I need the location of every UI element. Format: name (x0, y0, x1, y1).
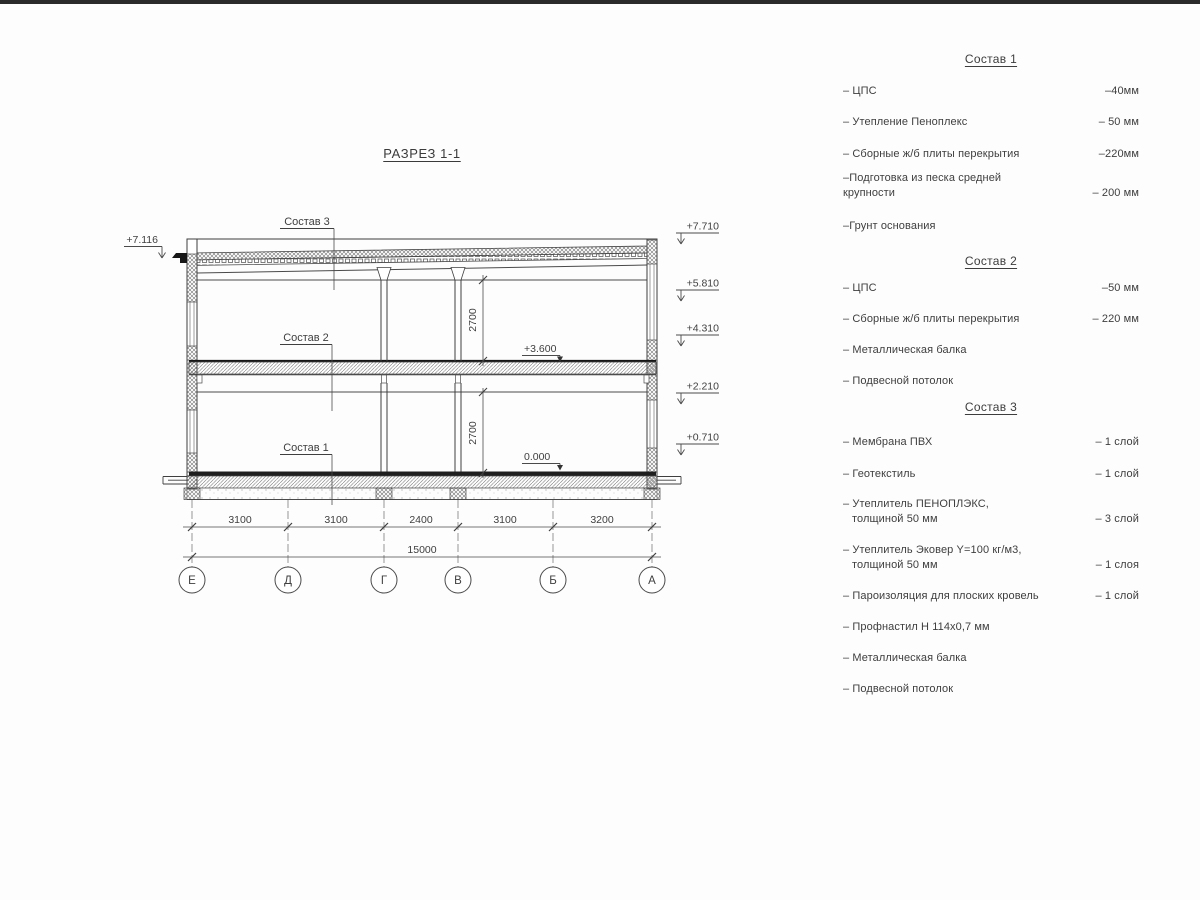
legend-row: – Сборные ж/б плиты перекрытия – 220 мм (843, 312, 1139, 327)
layer-value: – 1 слоя (1096, 558, 1139, 573)
dim-height-upper: 2700 (467, 308, 479, 332)
layer-label: –Грунт основания (843, 219, 936, 234)
dim-segment-2: 3100 (324, 514, 348, 526)
axis-letter-e: Е (188, 575, 196, 587)
axis-letter-b: Б (549, 575, 557, 587)
layer-label: – Подвесной потолок (843, 682, 953, 697)
layer-value: –50 мм (1102, 281, 1139, 296)
callout-sostav3: Состав 3 (284, 216, 330, 228)
elevation-left: +7.116 (126, 234, 158, 246)
layer-value: – 220 мм (1092, 312, 1139, 327)
layer-label: – Утеплитель ПЕНОПЛЭКС, толщиной 50 мм (843, 497, 989, 527)
callout-sostav1: Состав 1 (283, 442, 329, 454)
layer-label: – Пароизоляция для плоских кровель (843, 589, 1039, 604)
dim-segment-1: 3100 (228, 514, 252, 526)
layer-value: – 1 слой (1096, 435, 1139, 450)
layer-value: – 1 слой (1096, 467, 1139, 482)
axis-letter-g: Г (381, 575, 388, 587)
axis-letter-v: В (454, 575, 462, 587)
legend-heading-sostav3: Состав 3 (843, 400, 1139, 414)
elevation-right-5: +0.710 (687, 432, 720, 444)
layer-label: – ЦПС (843, 84, 877, 99)
layer-label: – Металлическая балка (843, 343, 967, 358)
dim-segment-3: 2400 (409, 514, 433, 526)
legend-row: – Металлическая балка (843, 343, 1139, 358)
elevation-mark (676, 290, 719, 301)
elevation-floor2: +3.600 (524, 343, 557, 355)
legend-row: – Утеплитель ПЕНОПЛЭКС, толщиной 50 мм –… (843, 497, 1139, 527)
right-footing-ledge (657, 477, 681, 485)
layer-value: –40мм (1105, 84, 1139, 99)
layer-label: – ЦПС (843, 281, 877, 296)
layer-value: – 200 мм (1092, 186, 1139, 201)
floor-slab-level2 (189, 361, 656, 392)
layer-label: – Сборные ж/б плиты перекрытия (843, 312, 1019, 327)
layer-label: – Геотекстиль (843, 467, 916, 482)
elevation-mark (676, 444, 719, 455)
elevation-right-1: +7.710 (687, 221, 720, 233)
left-footing-ledge (163, 477, 187, 485)
layer-value: – 3 слой (1096, 512, 1139, 527)
blueprint-page: РАЗРЕЗ 1-1 (0, 0, 1200, 900)
layer-value: –220мм (1099, 147, 1139, 162)
legend-row: –Грунт основания (843, 219, 1139, 234)
legend-row: – Пароизоляция для плоских кровель – 1 с… (843, 589, 1139, 604)
elevation-mark-left: +7.116 (124, 234, 166, 258)
legend-row: – Сборные ж/б плиты перекрытия –220мм (843, 147, 1139, 162)
layer-value: – 1 слой (1096, 589, 1139, 604)
elevation-right-2: +5.810 (687, 278, 720, 290)
elevation-mark (676, 393, 719, 404)
legend-row: – ЦПС –40мм (843, 84, 1139, 99)
elevation-marks-right: +7.710 +5.810 +4.310 +2.210 +0.710 (676, 221, 719, 456)
layer-label: – Сборные ж/б плиты перекрытия (843, 147, 1019, 162)
legend-row: – Утепление Пеноплекс – 50 мм (843, 115, 1139, 130)
legend-row: – Металлическая балка (843, 651, 1139, 666)
elevation-mark (676, 233, 719, 244)
legend-panel: Состав 1 – ЦПС –40мм – Утепление Пенопле… (843, 0, 1139, 720)
layer-label: – Профнастил Н 114х0,7 мм (843, 620, 990, 635)
elevation-right-3: +4.310 (687, 323, 720, 335)
dim-segment-5: 3200 (590, 514, 614, 526)
layer-label: – Металлическая балка (843, 651, 967, 666)
callout-sostav2: Состав 2 (283, 332, 329, 344)
layer-label: – Утепление Пеноплекс (843, 115, 967, 130)
legend-row: – Подвесной потолок (843, 374, 1139, 389)
roof-assembly (190, 246, 647, 280)
elevation-right-4: +2.210 (687, 381, 720, 393)
storey-height-dims: 2700 2700 (467, 275, 487, 478)
layer-label: –Подготовка из песка средней крупности (843, 171, 1001, 201)
dimension-chain: 3100 3100 2400 3100 3200 15000 (183, 514, 661, 561)
axis-letter-a: А (648, 575, 656, 587)
legend-row: – Геотекстиль – 1 слой (843, 467, 1139, 482)
elevation-floor1: 0.000 (524, 451, 550, 463)
elevation-mark (676, 335, 719, 346)
dim-total: 15000 (407, 544, 436, 556)
roof-scupper (172, 253, 187, 263)
legend-row: – Подвесной потолок (843, 682, 1139, 697)
layer-label: – Утеплитель Эковер Y=100 кг/м3, толщино… (843, 543, 1022, 573)
layer-label: – Подвесной потолок (843, 374, 953, 389)
legend-row: – Профнастил Н 114х0,7 мм (843, 620, 1139, 635)
layer-label: – Мембрана ПВХ (843, 435, 932, 450)
legend-heading-sostav1: Состав 1 (843, 52, 1139, 66)
legend-row: – Мембрана ПВХ – 1 слой (843, 435, 1139, 450)
dim-segment-4: 3100 (493, 514, 517, 526)
ground-floor-assembly (163, 472, 681, 500)
legend-row: –Подготовка из песка средней крупности –… (843, 171, 1139, 201)
axis-letter-d: Д (284, 575, 292, 587)
legend-row: – ЦПС –50 мм (843, 281, 1139, 296)
legend-heading-sostav2: Состав 2 (843, 254, 1139, 268)
layer-value: – 50 мм (1099, 115, 1139, 130)
legend-row: – Утеплитель Эковер Y=100 кг/м3, толщино… (843, 543, 1139, 573)
dim-height-lower: 2700 (467, 421, 479, 445)
